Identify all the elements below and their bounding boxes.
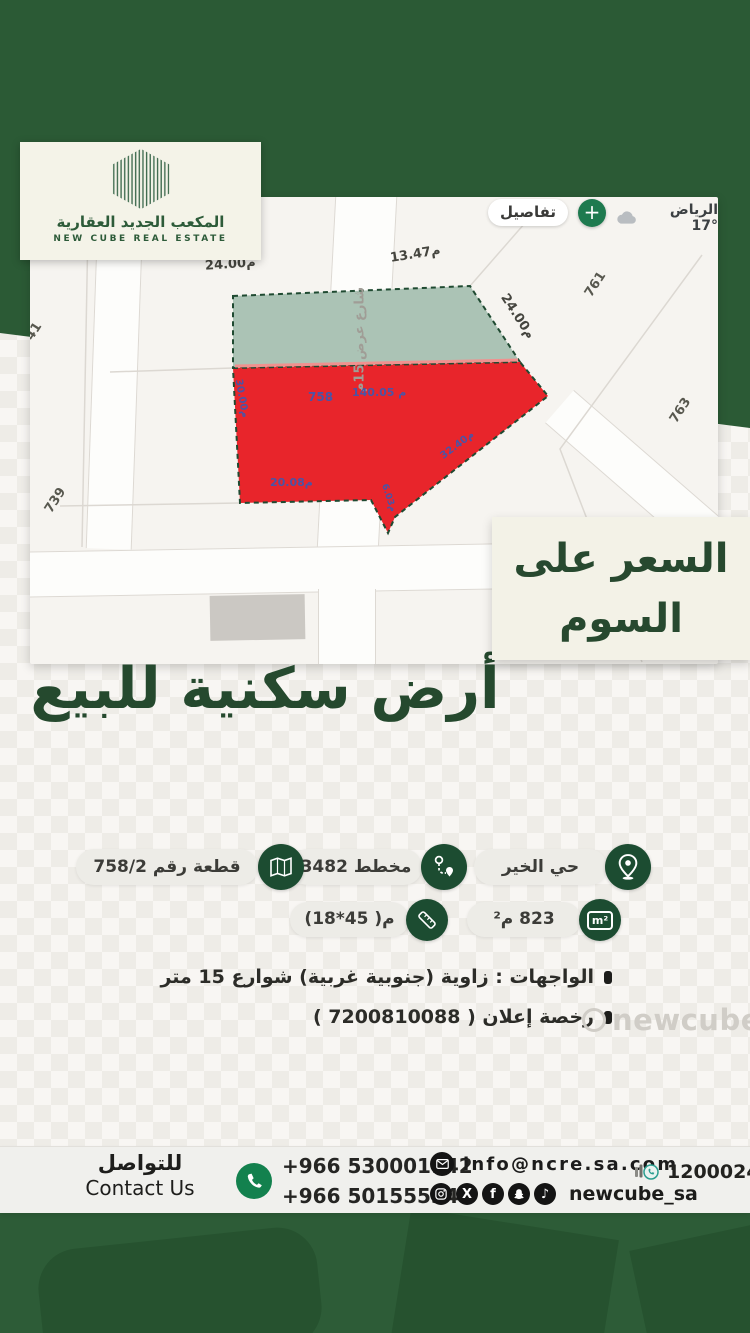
facebook-icon: f <box>482 1183 504 1205</box>
cloud-icon <box>616 211 637 225</box>
footer-shape <box>629 1218 750 1333</box>
weather-label: الرياض °17 <box>643 202 718 234</box>
price-note-line1: السعر على <box>514 529 729 589</box>
x-icon: X <box>456 1183 478 1205</box>
badge-area: 823 م² <box>467 902 581 937</box>
badge-plan-circle <box>421 844 467 890</box>
watermark-text: newcube_sa <box>612 1003 750 1037</box>
contact-label-english: Contact Us <box>78 1176 202 1200</box>
unified-number: 1200024175 <box>634 1161 750 1183</box>
measure-inner-length: م 140.05 <box>352 386 406 399</box>
watermark-logo-icon <box>582 1008 606 1032</box>
footer-shape <box>34 1224 325 1333</box>
cube-logo-icon <box>104 148 178 210</box>
phone-icon <box>236 1163 272 1199</box>
price-note-panel: السعر على السوم <box>492 517 750 660</box>
footer-shape <box>391 1213 619 1333</box>
map-zoom-in-button[interactable]: + <box>578 199 606 227</box>
map-icon <box>269 856 293 878</box>
brand-name-english: NEW CUBE REAL ESTATE <box>53 234 227 244</box>
badge-dimensions: م( 45*18) <box>290 902 409 937</box>
parcel-teal <box>233 286 520 368</box>
badge-area-circle: m² <box>579 899 621 941</box>
page-title: أرض سكنية للبيع <box>20 656 510 722</box>
license-text: رخصة إعلان ( 7200810088 ) <box>313 1006 594 1028</box>
unified-number-icon <box>634 1163 660 1181</box>
map-weather-widget: الرياض °17 <box>616 202 718 234</box>
badge-dimensions-circle <box>406 899 448 941</box>
map-details-button[interactable]: تفاصيل <box>488 199 568 226</box>
footer-band <box>0 1213 750 1333</box>
unified-number-text: 1200024175 <box>667 1161 750 1183</box>
tiktok-icon: ♪ <box>534 1183 556 1205</box>
contact-label: للتواصل Contact Us <box>78 1151 202 1200</box>
badge-district-circle <box>605 844 651 890</box>
price-note-line2: السوم <box>559 589 683 649</box>
social-row: X f ♪ newcube_sa <box>430 1183 698 1205</box>
plot-number-label: 758 <box>308 390 333 404</box>
ruler-icon <box>414 907 440 933</box>
location-pin-icon <box>617 854 639 880</box>
brand-name-arabic: المكعب الجديد العقارية <box>57 213 225 231</box>
contact-label-arabic: للتواصل <box>78 1151 202 1175</box>
watermark: newcube_sa <box>582 1003 750 1037</box>
badge-plot-circle <box>258 844 304 890</box>
instagram-icon <box>430 1183 452 1205</box>
badge-district: حي الخير <box>474 849 607 885</box>
measure-bottom: م20.08 <box>270 476 313 489</box>
ad-poster: تفاصيل + الرياض °17 شارع عرض 15م م24.00 … <box>0 0 750 1333</box>
detail-frontage: الواجهات : زاوية (جنوبية غربية) شوارع 15… <box>160 966 612 988</box>
snapchat-icon <box>508 1183 530 1205</box>
brand-logo-card: المكعب الجديد العقارية NEW CUBE REAL EST… <box>20 142 261 260</box>
email-icon <box>430 1152 454 1176</box>
building-footprint <box>210 594 306 641</box>
frontage-text: الواجهات : زاوية (جنوبية غربية) شوارع 15… <box>160 966 594 988</box>
detail-license: رخصة إعلان ( 7200810088 ) <box>313 1006 612 1028</box>
badge-plot: قطعة رقم 758/2 <box>76 849 258 885</box>
square-meter-icon: m² <box>587 911 613 930</box>
bullet-icon <box>604 971 612 984</box>
social-handle: newcube_sa <box>569 1183 698 1205</box>
route-pin-icon <box>432 854 456 880</box>
street-label: شارع عرض 15م <box>353 255 368 425</box>
badge-plan: مخطط 3482 <box>290 849 422 885</box>
